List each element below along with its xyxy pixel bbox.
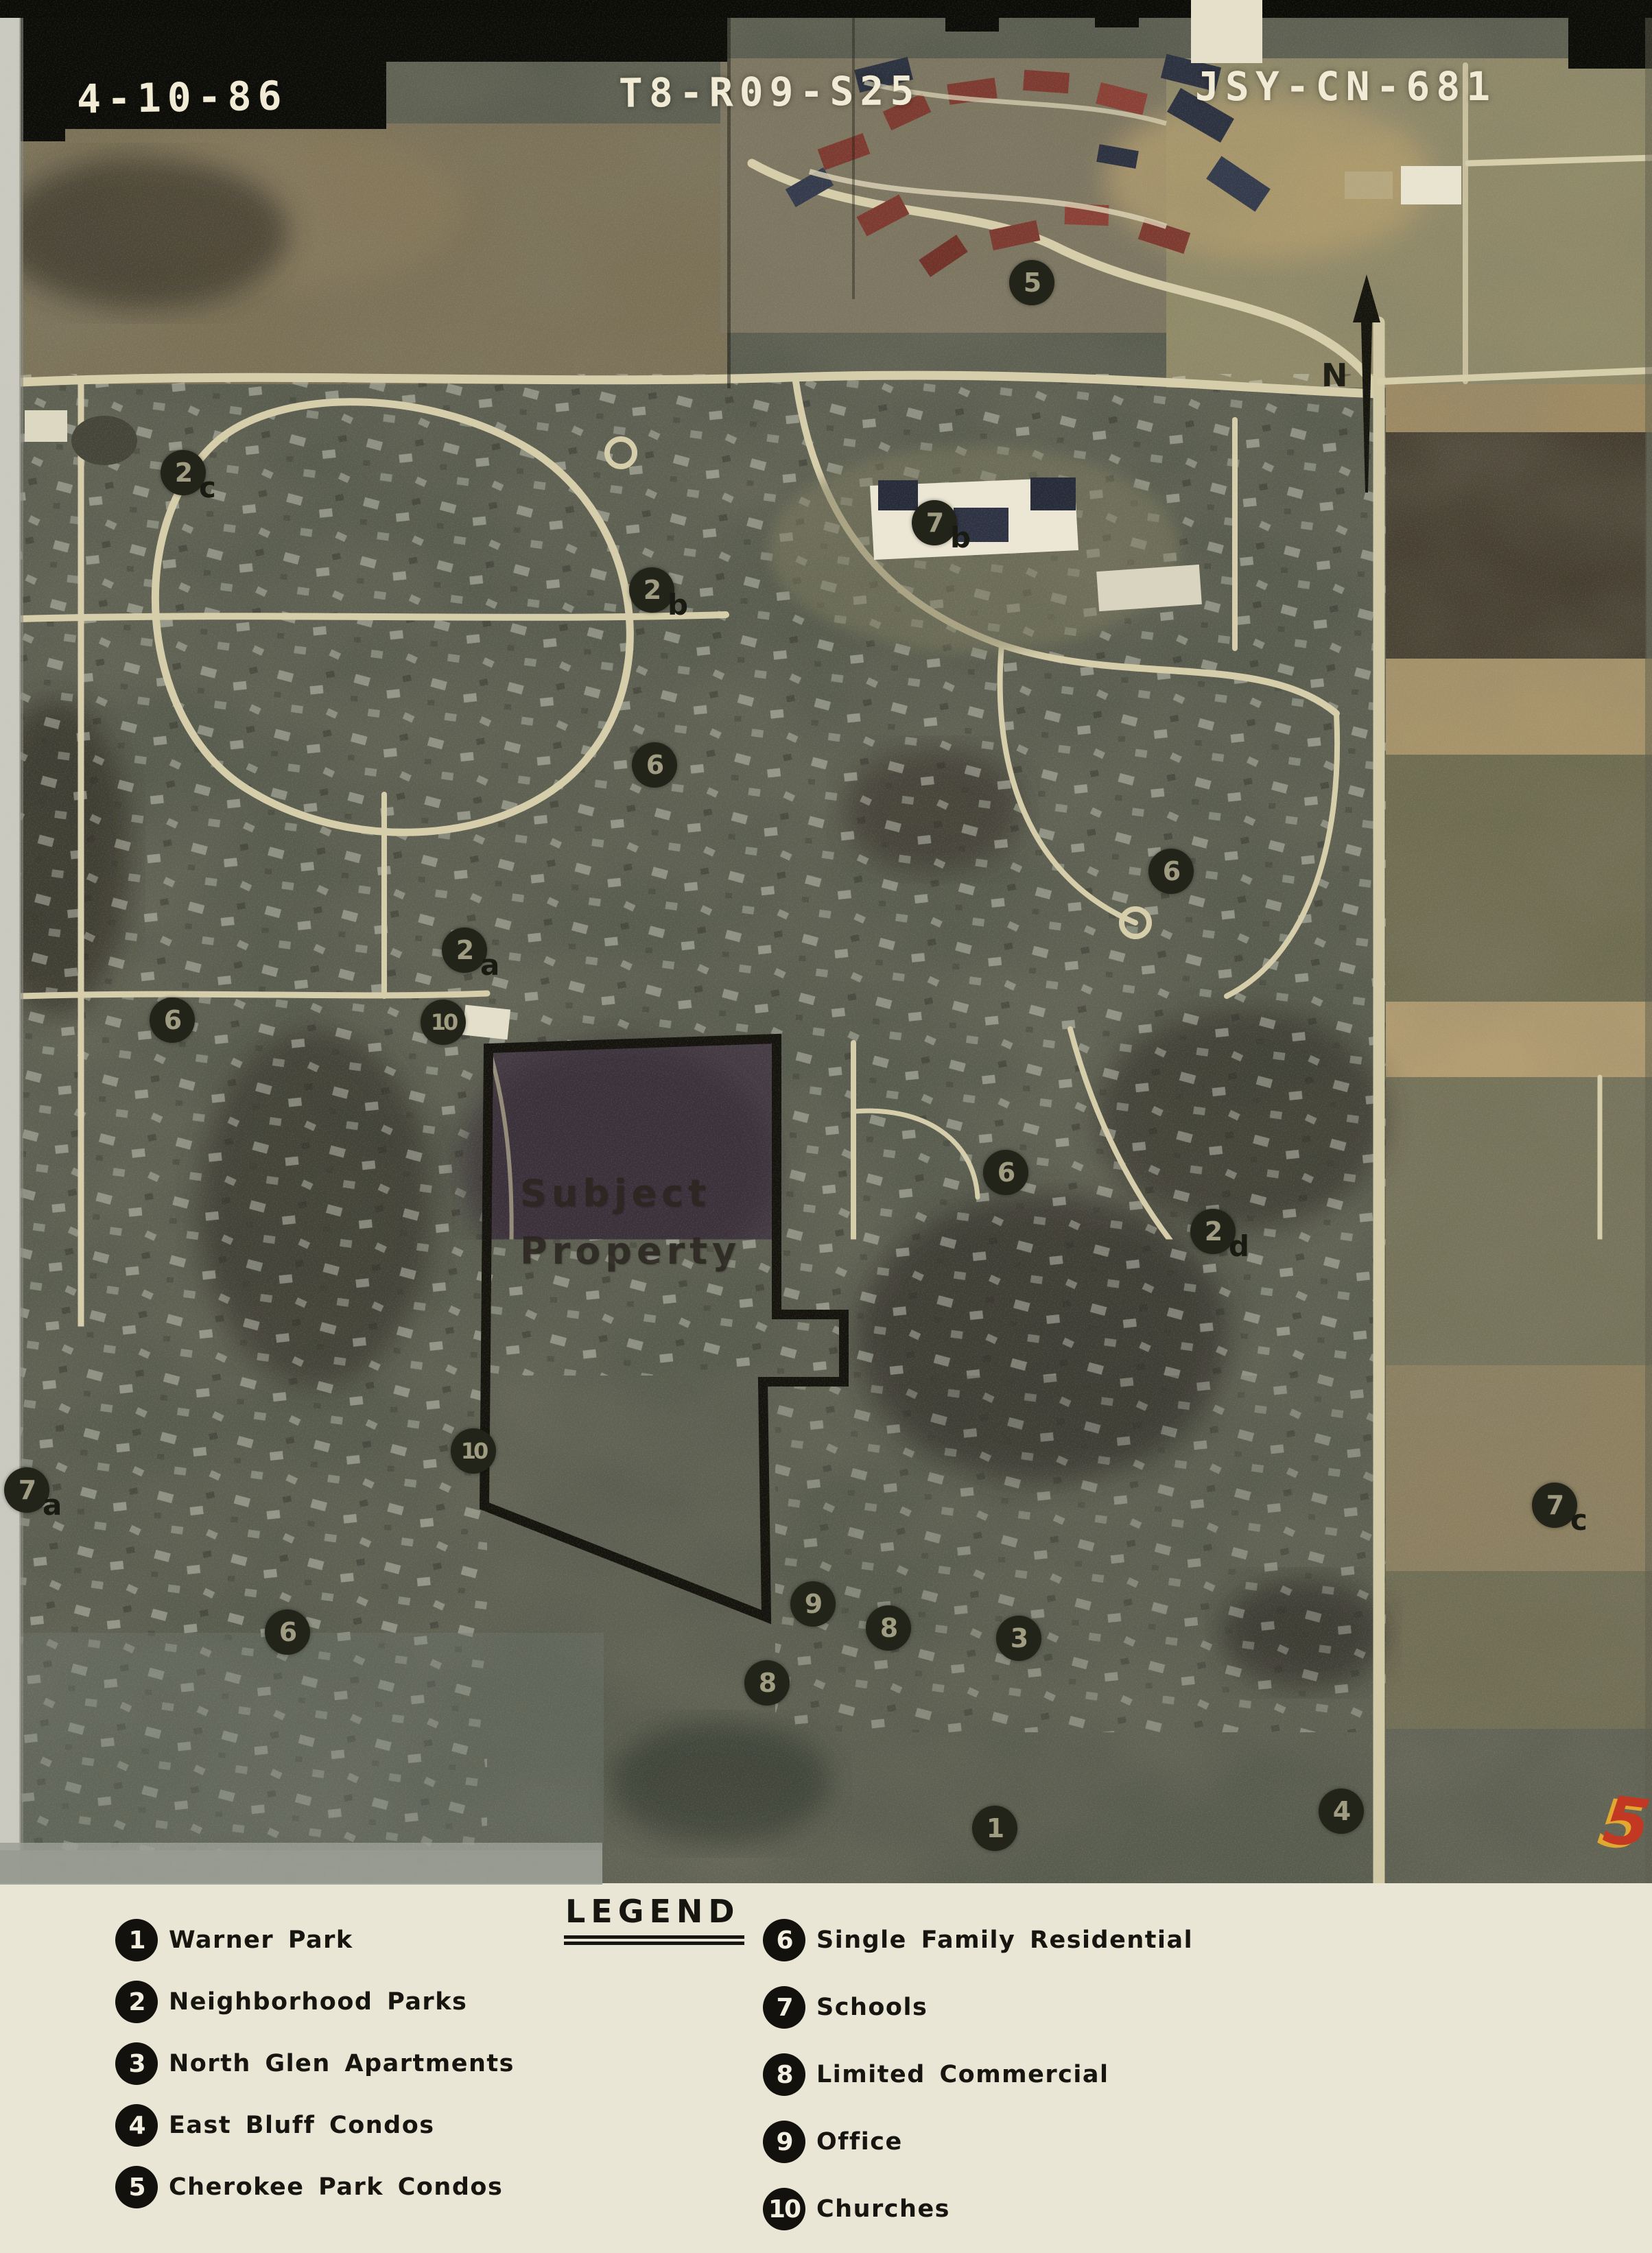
map-marker-10: 10 <box>451 1428 496 1474</box>
legend-title: LEGEND <box>564 1893 744 1939</box>
corner-mark: 5 <box>1599 1781 1652 1863</box>
map-marker-7b: 7 b <box>912 500 957 545</box>
legend: LEGEND 1 Warner Park 2 Neighborhood Park… <box>0 1883 1652 2253</box>
map-marker-1: 1 <box>972 1806 1017 1851</box>
map-marker-number: 1 <box>987 1813 1003 1843</box>
legend-item-badge: 3 <box>115 2042 158 2085</box>
map-marker-2c: 2 c <box>161 450 206 495</box>
map-marker-number: 8 <box>759 1668 775 1698</box>
map-marker-2a: 2 a <box>442 928 487 973</box>
legend-column-left: 1 Warner Park 2 Neighborhood Parks 3 Nor… <box>115 1919 515 2228</box>
map-marker-number: 5 <box>1024 268 1040 298</box>
map-marker-number: 2 <box>644 575 660 605</box>
map-marker-number: 3 <box>1011 1623 1027 1653</box>
map-marker-subletter: a <box>43 1488 62 1522</box>
photo-section-stamp: T8-R09-S25 <box>619 67 921 117</box>
map-marker-subletter: c <box>1570 1503 1588 1537</box>
legend-item-2: 2 Neighborhood Parks <box>115 1981 515 2023</box>
aerial-photo: 4-10-86 T8-R09-S25 JSY-CN-681 Subject Pr… <box>0 0 1652 1883</box>
legend-item-badge: 8 <box>763 2053 805 2096</box>
map-marker-number: 9 <box>805 1589 821 1619</box>
map-marker-7c: 7 c <box>1532 1483 1577 1528</box>
map-marker-5: 5 <box>1009 260 1054 305</box>
legend-item-badge: 1 <box>115 1919 158 1961</box>
legend-item-badge: 4 <box>115 2104 158 2147</box>
map-marker-9: 9 <box>790 1581 836 1627</box>
map-marker-6: 6 <box>1148 849 1194 894</box>
map-marker-number: 7 <box>1546 1490 1563 1520</box>
legend-item-5: 5 Cherokee Park Condos <box>115 2166 515 2208</box>
aerial-photo-exhibit: 4-10-86 T8-R09-S25 JSY-CN-681 Subject Pr… <box>0 0 1652 2253</box>
map-marker-10: 10 <box>421 1000 466 1045</box>
map-marker-7a: 7 a <box>4 1467 49 1513</box>
map-marker-6: 6 <box>983 1150 1028 1195</box>
legend-item-badge: 2 <box>115 1981 158 2023</box>
legend-item-badge: 6 <box>763 1919 805 1961</box>
map-marker-subletter: b <box>668 588 688 622</box>
legend-item-8: 8 Limited Commercial <box>763 2053 1193 2096</box>
map-marker-number: 2 <box>175 458 191 488</box>
map-marker-number: 2 <box>1205 1216 1221 1247</box>
legend-item-badge: 9 <box>763 2121 805 2163</box>
legend-item-badge: 5 <box>115 2166 158 2208</box>
subject-property-label: Subject Property <box>520 1165 741 1279</box>
map-marker-4: 4 <box>1319 1789 1364 1834</box>
map-marker-number: 8 <box>880 1613 897 1643</box>
map-marker-subletter: c <box>199 471 216 504</box>
legend-item-label: Warner Park <box>169 1926 353 1954</box>
legend-item-label: Office <box>816 2128 903 2156</box>
map-marker-subletter: d <box>1229 1229 1249 1263</box>
map-marker-number: 7 <box>19 1475 35 1505</box>
map-marker-2d: 2 d <box>1190 1209 1236 1254</box>
legend-item-badge: 7 <box>763 1986 805 2029</box>
map-marker-2b: 2 b <box>629 567 674 613</box>
map-marker-number: 10 <box>431 1009 456 1035</box>
legend-item-label: North Glen Apartments <box>169 2050 515 2077</box>
legend-item-label: Single Family Residential <box>816 1926 1193 1954</box>
map-marker-number: 6 <box>998 1157 1014 1188</box>
map-marker-number: 10 <box>461 1438 486 1464</box>
photo-id-stamp: JSY-CN-681 <box>1195 63 1496 110</box>
map-marker-6: 6 <box>265 1609 310 1655</box>
legend-item-badge: 10 <box>763 2188 805 2230</box>
legend-item-4: 4 East Bluff Condos <box>115 2104 515 2147</box>
legend-item-label: Churches <box>816 2195 950 2223</box>
legend-item-label: Limited Commercial <box>816 2061 1109 2088</box>
map-marker-8: 8 <box>866 1605 911 1651</box>
legend-item-10: 10 Churches <box>763 2188 1193 2230</box>
legend-item-7: 7 Schools <box>763 1986 1193 2029</box>
legend-item-6: 6 Single Family Residential <box>763 1919 1193 1961</box>
north-label: N <box>1321 357 1348 394</box>
legend-item-9: 9 Office <box>763 2121 1193 2163</box>
map-marker-8: 8 <box>744 1660 790 1706</box>
map-marker-number: 2 <box>456 935 473 965</box>
map-marker-number: 6 <box>1163 856 1179 886</box>
map-marker-6: 6 <box>632 742 677 788</box>
map-marker-3: 3 <box>996 1616 1041 1661</box>
legend-item-3: 3 North Glen Apartments <box>115 2042 515 2085</box>
map-marker-subletter: b <box>950 521 971 554</box>
map-marker-6: 6 <box>150 998 195 1043</box>
map-marker-number: 6 <box>164 1005 180 1035</box>
map-marker-subletter: a <box>480 948 499 982</box>
map-marker-number: 6 <box>646 750 663 780</box>
photo-date-stamp: 4-10-86 <box>76 72 288 122</box>
legend-item-label: Schools <box>816 1994 928 2021</box>
legend-item-label: East Bluff Condos <box>169 2112 435 2139</box>
legend-item-label: Neighborhood Parks <box>169 1988 467 2016</box>
legend-item-label: Cherokee Park Condos <box>169 2173 503 2201</box>
map-marker-number: 4 <box>1333 1796 1349 1826</box>
map-marker-number: 6 <box>279 1617 296 1647</box>
map-marker-number: 7 <box>926 508 943 538</box>
legend-column-right: 6 Single Family Residential 7 Schools 8 … <box>763 1919 1193 2253</box>
legend-item-1: 1 Warner Park <box>115 1919 515 1961</box>
